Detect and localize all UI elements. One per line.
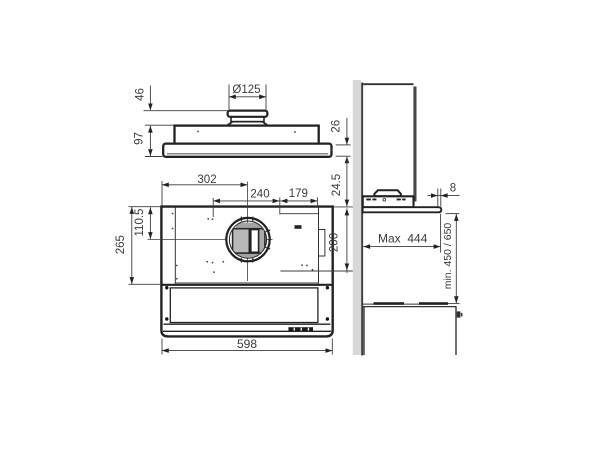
svg-text:598: 598 [237,337,257,351]
svg-text:265: 265 [115,235,127,254]
svg-text:8: 8 [450,183,456,195]
svg-text:240: 240 [250,189,269,201]
svg-text:24.5: 24.5 [331,174,343,196]
svg-text:min. 450 / 650: min. 450 / 650 [442,223,454,290]
svg-text:179: 179 [289,188,308,200]
svg-text:26: 26 [330,120,342,133]
svg-text:46: 46 [135,88,147,101]
svg-text:97: 97 [134,132,146,145]
svg-text:200: 200 [329,233,341,252]
svg-text:Ø125: Ø125 [232,84,260,96]
svg-text:110.5: 110.5 [134,209,146,237]
svg-text:Max 444: Max 444 [378,232,428,246]
svg-text:302: 302 [197,174,216,186]
